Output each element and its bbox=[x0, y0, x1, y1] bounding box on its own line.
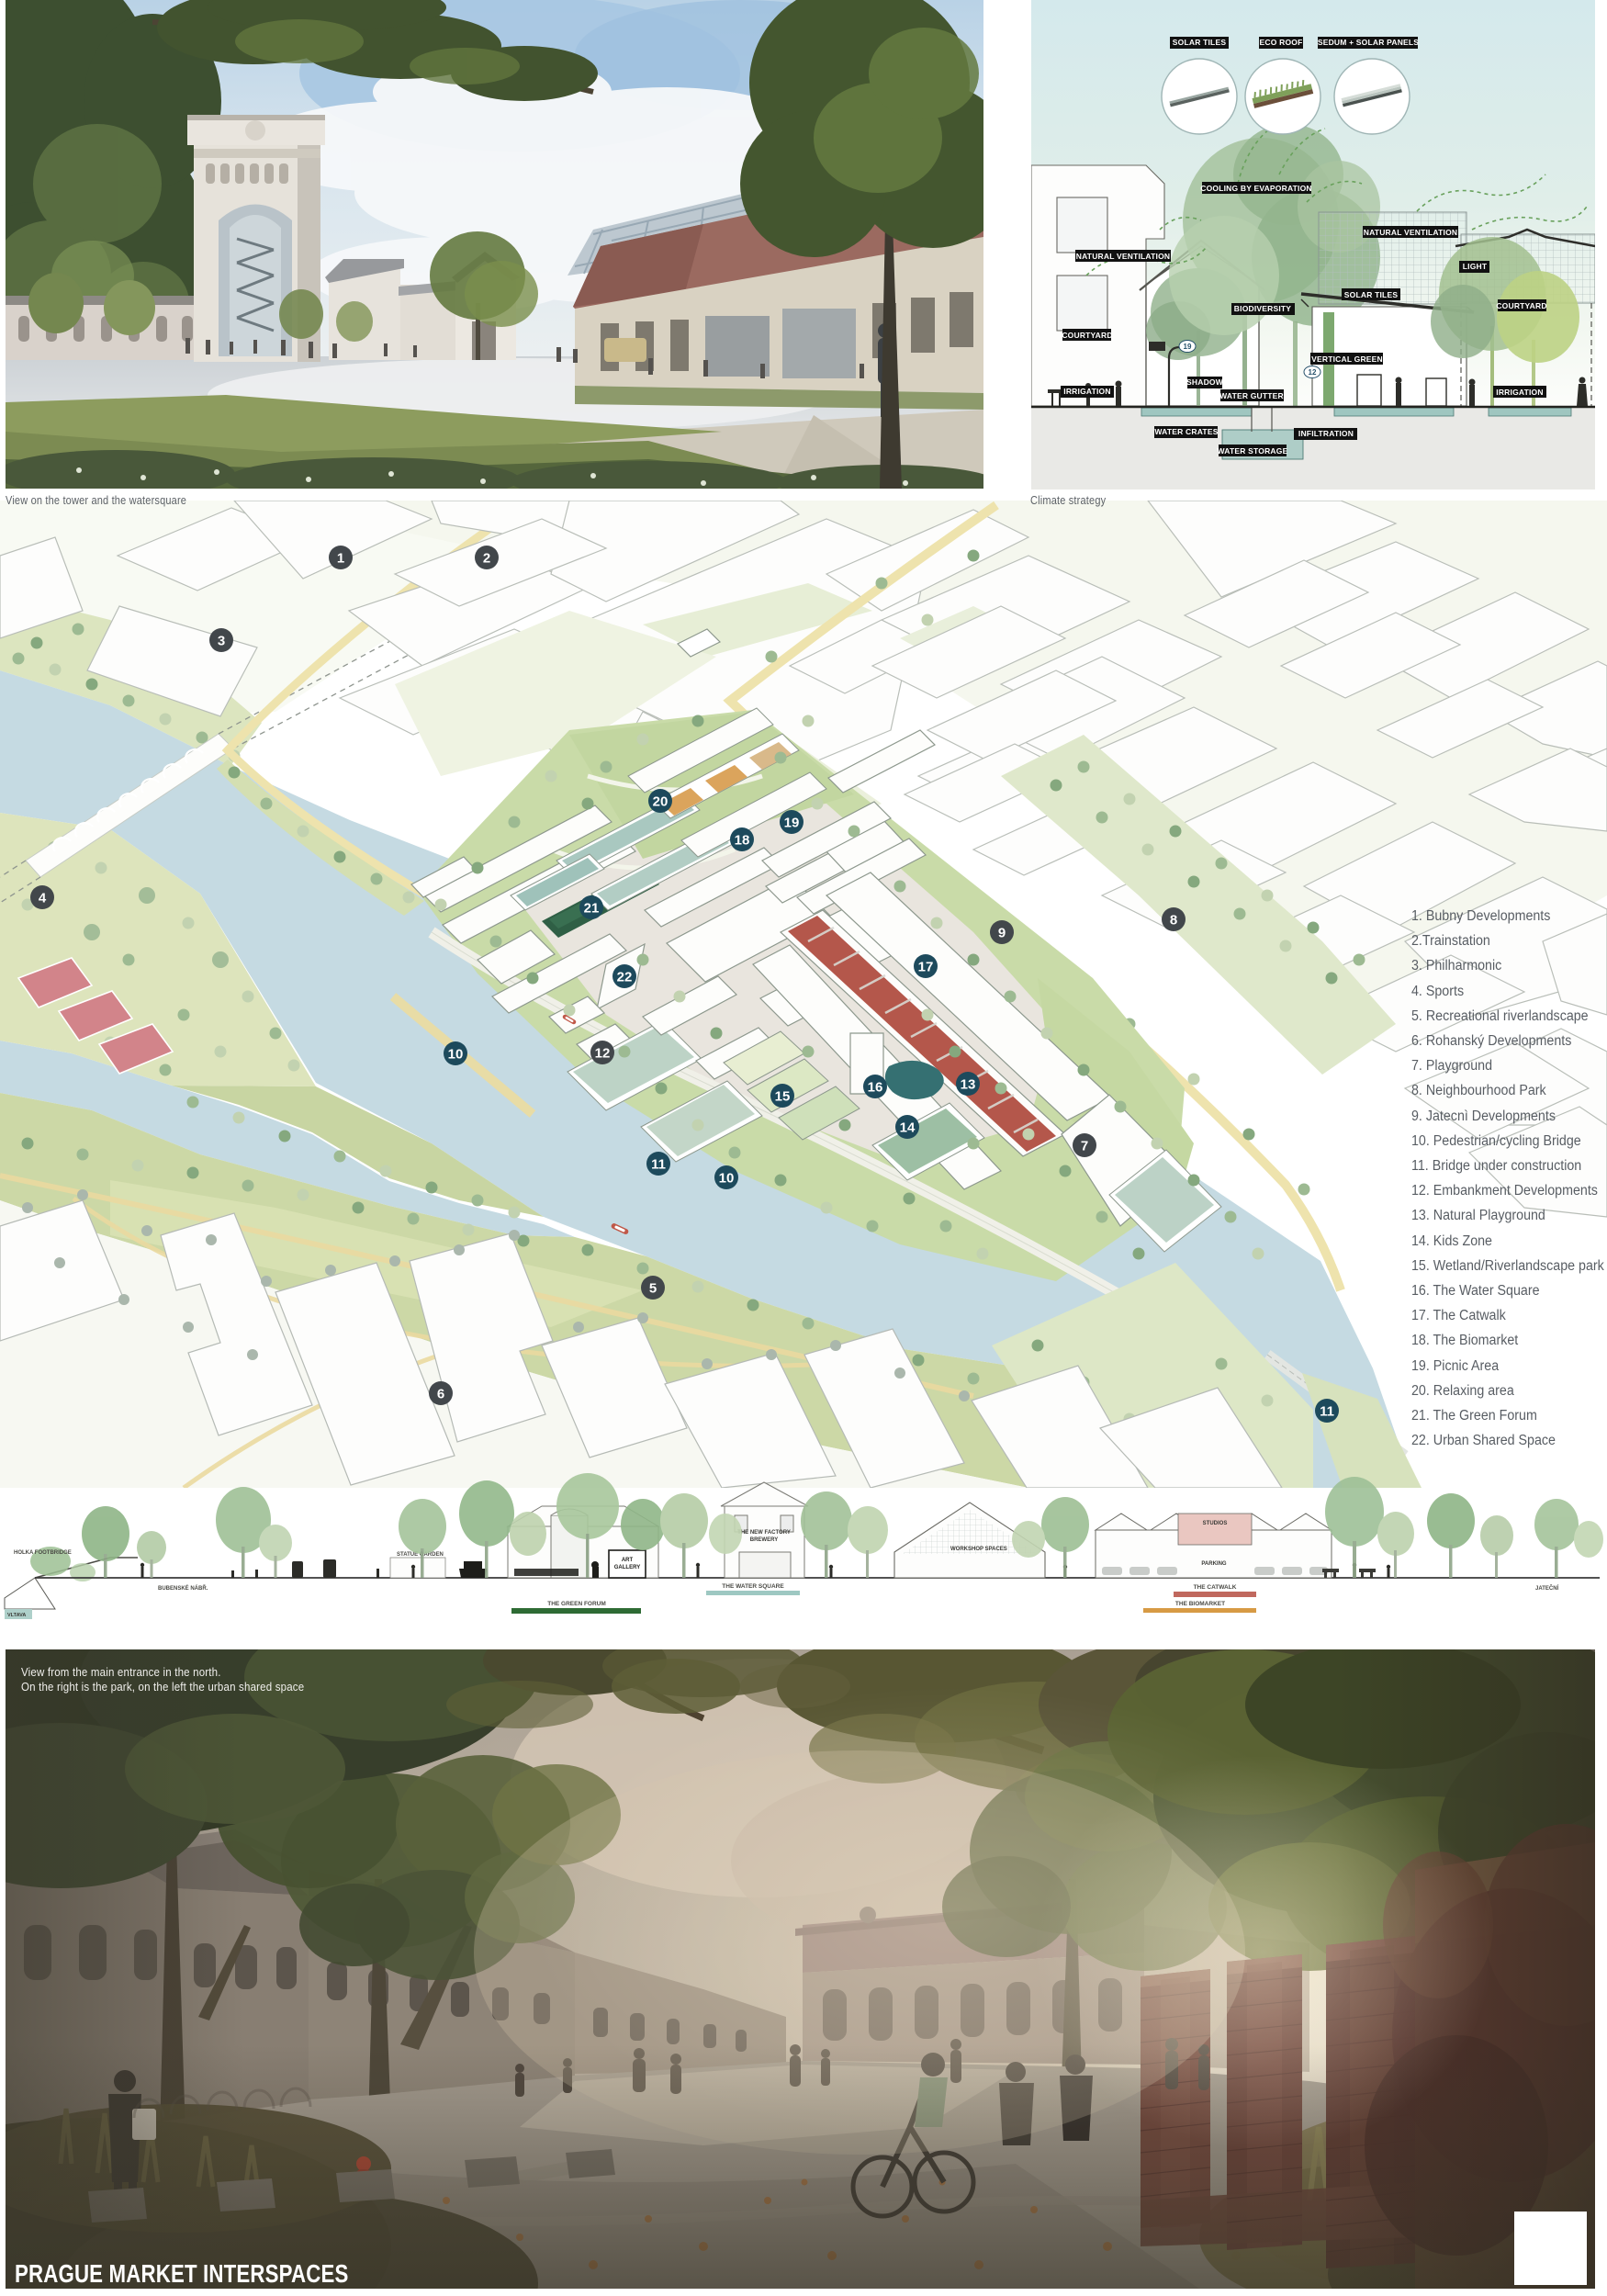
svg-text:12: 12 bbox=[595, 1046, 611, 1062]
svg-text:14: 14 bbox=[900, 1120, 916, 1136]
svg-text:IRRIGATION: IRRIGATION bbox=[1496, 388, 1543, 397]
svg-text:STUDIOS: STUDIOS bbox=[1203, 1521, 1228, 1526]
svg-text:10: 10 bbox=[719, 1171, 735, 1187]
svg-text:SOLAR TILES: SOLAR TILES bbox=[1173, 38, 1227, 47]
svg-text:9: 9 bbox=[998, 926, 1006, 941]
svg-text:COURTYARD: COURTYARD bbox=[1496, 301, 1546, 310]
svg-text:21: 21 bbox=[584, 901, 600, 917]
svg-text:PARKING: PARKING bbox=[1201, 1561, 1227, 1567]
svg-text:2: 2 bbox=[483, 551, 490, 567]
svg-text:THE GREEN FORUM: THE GREEN FORUM bbox=[547, 1601, 606, 1607]
svg-text:COURTYARD: COURTYARD bbox=[1062, 331, 1112, 340]
svg-text:BIODIVERSITY: BIODIVERSITY bbox=[1234, 304, 1292, 313]
svg-text:THE BIOMARKET: THE BIOMARKET bbox=[1175, 1601, 1225, 1607]
svg-text:20: 20 bbox=[653, 794, 669, 810]
svg-text:12: 12 bbox=[1309, 368, 1317, 377]
svg-text:15: 15 bbox=[775, 1089, 791, 1105]
svg-text:11: 11 bbox=[1320, 1404, 1334, 1420]
svg-text:13: 13 bbox=[961, 1077, 976, 1093]
svg-text:SEDUM + SOLAR PANELS: SEDUM + SOLAR PANELS bbox=[1318, 38, 1419, 47]
svg-text:LIGHT: LIGHT bbox=[1463, 262, 1488, 271]
svg-text:10: 10 bbox=[448, 1047, 464, 1063]
svg-text:6: 6 bbox=[437, 1387, 444, 1402]
svg-text:19: 19 bbox=[1184, 343, 1192, 351]
svg-text:HOLKA FOOTBRIDGE: HOLKA FOOTBRIDGE bbox=[14, 1550, 72, 1556]
svg-text:19: 19 bbox=[784, 816, 800, 831]
svg-text:ART: ART bbox=[622, 1558, 634, 1563]
svg-text:16: 16 bbox=[868, 1080, 883, 1096]
svg-text:4: 4 bbox=[39, 891, 47, 906]
svg-text:17: 17 bbox=[918, 960, 934, 975]
svg-text:VERTICAL GREEN: VERTICAL GREEN bbox=[1311, 355, 1383, 364]
svg-text:VLTAVA: VLTAVA bbox=[7, 1613, 26, 1618]
svg-text:NATURAL VENTILATION: NATURAL VENTILATION bbox=[1076, 252, 1171, 261]
svg-text:7: 7 bbox=[1081, 1139, 1088, 1154]
svg-text:JATEČNÍ: JATEČNÍ bbox=[1535, 1584, 1559, 1592]
svg-text:IRRIGATION: IRRIGATION bbox=[1063, 387, 1110, 396]
svg-text:INFILTRATION: INFILTRATION bbox=[1298, 429, 1354, 438]
svg-text:BUBENSKÉ NÁBŘ.: BUBENSKÉ NÁBŘ. bbox=[158, 1584, 208, 1592]
svg-text:1: 1 bbox=[337, 551, 344, 567]
svg-text:THE CATWALK: THE CATWALK bbox=[1194, 1584, 1237, 1591]
svg-text:COOLING BY EVAPORATION: COOLING BY EVAPORATION bbox=[1200, 184, 1312, 193]
svg-text:3: 3 bbox=[218, 634, 225, 649]
svg-text:NATURAL VENTILATION: NATURAL VENTILATION bbox=[1364, 228, 1458, 237]
svg-text:SHADOW: SHADOW bbox=[1186, 377, 1224, 387]
svg-text:ECO ROOF: ECO ROOF bbox=[1260, 38, 1303, 47]
svg-text:WATER STORAGE: WATER STORAGE bbox=[1218, 446, 1288, 456]
svg-text:8: 8 bbox=[1170, 913, 1177, 929]
svg-text:18: 18 bbox=[735, 833, 750, 849]
svg-text:THE NEW FACTORY: THE NEW FACTORY bbox=[737, 1530, 791, 1536]
svg-text:5: 5 bbox=[649, 1281, 657, 1297]
svg-text:WORKSHOP SPACES: WORKSHOP SPACES bbox=[950, 1547, 1007, 1552]
svg-text:THE WATER SQUARE: THE WATER SQUARE bbox=[722, 1583, 784, 1590]
svg-text:WATER CRATES: WATER CRATES bbox=[1154, 427, 1218, 436]
svg-text:22: 22 bbox=[617, 970, 633, 985]
svg-text:11: 11 bbox=[651, 1157, 666, 1173]
svg-text:WATER GUTTER: WATER GUTTER bbox=[1219, 391, 1284, 400]
svg-text:SOLAR TILES: SOLAR TILES bbox=[1344, 290, 1399, 299]
svg-text:BREWERY: BREWERY bbox=[750, 1537, 778, 1543]
svg-text:GALLERY: GALLERY bbox=[614, 1565, 640, 1570]
